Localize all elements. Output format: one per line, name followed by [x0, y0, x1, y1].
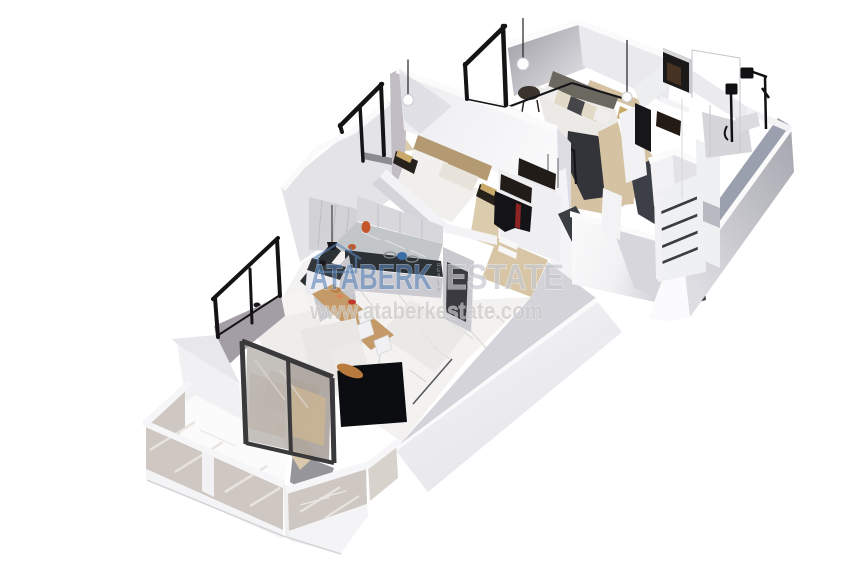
svg-text:ATABERK: ATABERK — [310, 258, 432, 297]
svg-text:ESTATE: ESTATE — [446, 258, 564, 297]
svg-text:Y: Y — [437, 288, 441, 294]
svg-text:www.ataberkestate.com: www.ataberkestate.com — [309, 298, 543, 325]
